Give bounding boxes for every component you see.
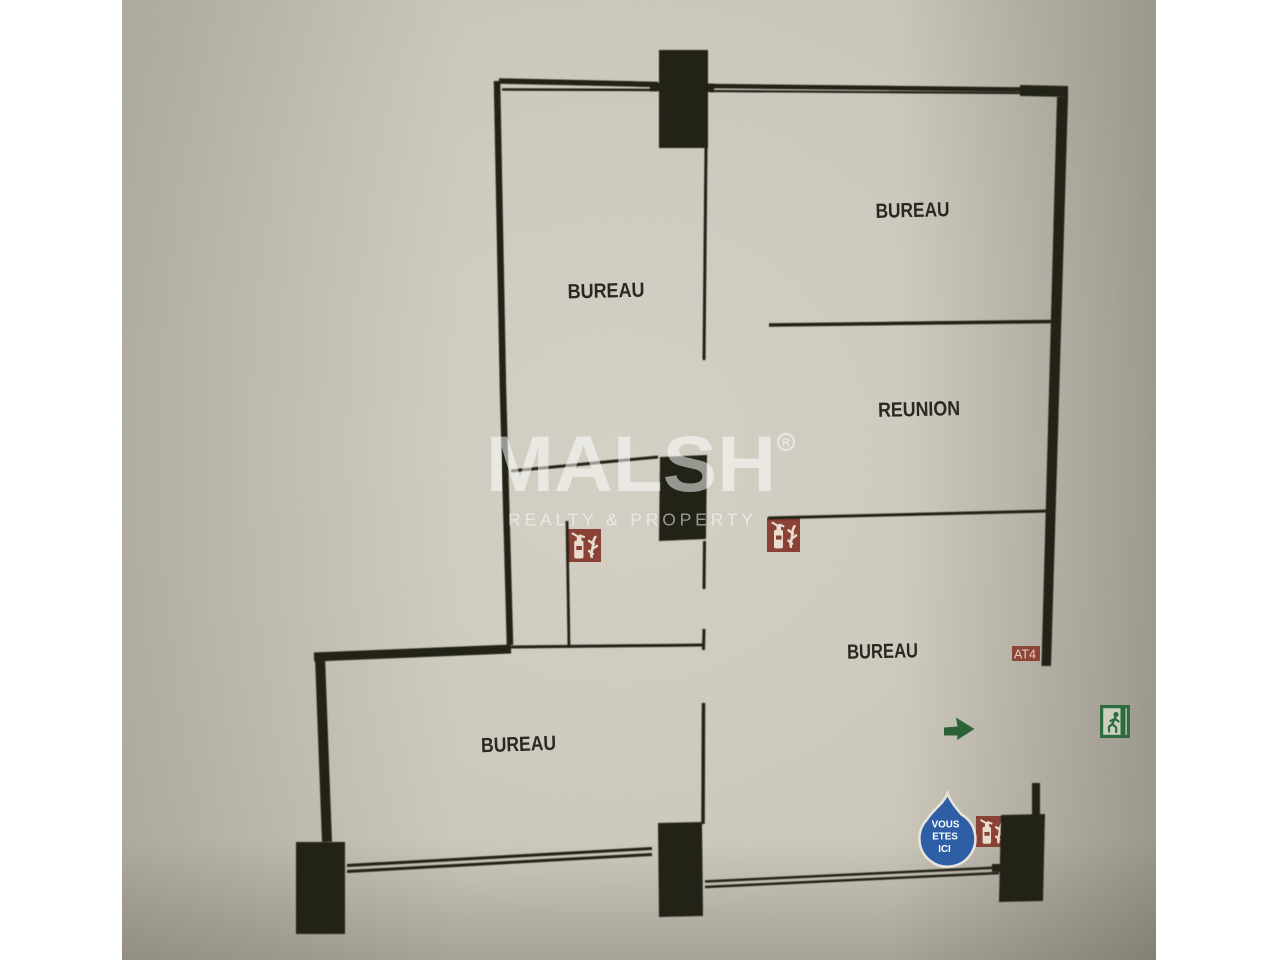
svg-text:BUREAU: BUREAU <box>481 732 557 758</box>
svg-text:BUREAU: BUREAU <box>875 198 950 223</box>
svg-text:REUNION: REUNION <box>878 397 961 422</box>
svg-text:AT4: AT4 <box>1014 648 1036 662</box>
svg-text:R: R <box>782 437 790 449</box>
svg-text:MALSH: MALSH <box>486 419 776 508</box>
svg-text:ICI: ICI <box>938 844 951 855</box>
svg-text:BUREAU: BUREAU <box>847 639 919 664</box>
svg-text:ETES: ETES <box>932 832 958 843</box>
svg-text:VOUS: VOUS <box>932 820 960 831</box>
svg-text:REALTY & PROPERTY: REALTY & PROPERTY <box>508 510 753 530</box>
svg-text:BUREAU: BUREAU <box>567 279 645 304</box>
